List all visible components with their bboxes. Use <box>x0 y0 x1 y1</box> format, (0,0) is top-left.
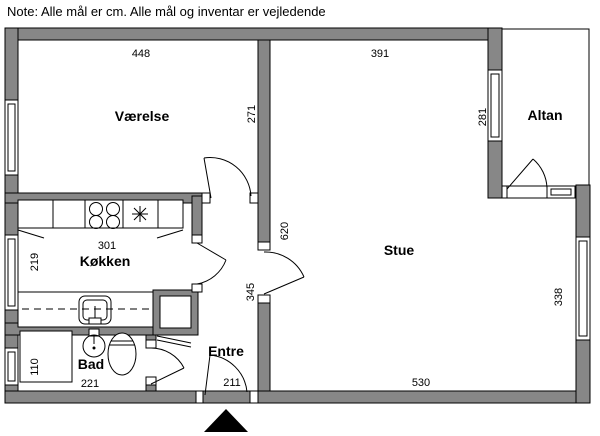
dim-bad-width: 221 <box>81 378 99 390</box>
dim-entre-door: 211 <box>223 377 241 389</box>
jamb-stue-bottom <box>258 295 270 303</box>
room-label-vaerelse: Værelse <box>115 108 170 124</box>
window-vaerelse <box>5 100 18 175</box>
wall-stue-left-lower <box>258 295 270 391</box>
room-label-altan: Altan <box>528 107 563 123</box>
window-bad <box>5 348 18 385</box>
door-stue <box>264 252 304 294</box>
wall-stue-left-upper <box>258 40 270 250</box>
dim-koekken-counter: 301 <box>98 240 116 252</box>
jamb-entre-left <box>196 391 203 403</box>
room-label-entre: Entre <box>208 343 244 359</box>
window-koekken <box>5 235 18 310</box>
dim-vaerelse-depth: 271 <box>246 105 258 123</box>
counter-leader-marks <box>18 230 183 238</box>
shower-tray <box>20 331 72 382</box>
closet-interior <box>160 296 191 328</box>
dim-koekken-window: 219 <box>29 253 41 271</box>
sink-drain-icon <box>132 206 148 222</box>
dim-stue-window: 338 <box>553 288 565 306</box>
door-entre <box>205 355 247 395</box>
jamb-koekken-top <box>192 235 202 243</box>
room-label-koekken: Køkken <box>80 253 131 269</box>
dim-stue-bottom: 530 <box>412 377 430 389</box>
jamb-altan-left <box>502 186 507 198</box>
door-koekken <box>197 243 226 284</box>
floorplan-drawing: 448 Værelse 271 391 281 Altan Stue 620 3… <box>0 0 600 436</box>
jamb-koekken-bottom <box>192 284 202 292</box>
toilet-icon <box>108 333 136 375</box>
window-stue-right <box>576 237 590 340</box>
jamb-bad-top <box>146 340 156 348</box>
opening-marks <box>157 336 191 347</box>
room-label-bad: Bad <box>78 356 104 372</box>
outer-wall-bottom <box>5 391 590 403</box>
door-altan <box>507 159 547 189</box>
jamb-stue-top <box>258 242 270 250</box>
door-vaerelse <box>204 158 251 198</box>
jamb-entre-right <box>250 391 258 403</box>
outer-wall-top <box>5 28 502 40</box>
room-label-stue: Stue <box>384 242 415 258</box>
wall-bad-right-lower <box>146 385 156 391</box>
dim-bad-window: 110 <box>29 358 41 376</box>
floorplan-page: Note: Alle mål er cm. Alle mål og invent… <box>0 0 600 436</box>
dim-entre-wall: 345 <box>245 283 257 301</box>
dim-altan-window: 281 <box>477 108 489 126</box>
dim-vaerelse-width: 448 <box>132 48 150 60</box>
altan-door-opening <box>502 186 547 198</box>
dim-stue-left: 620 <box>279 222 291 240</box>
dim-stue-top: 391 <box>371 48 389 60</box>
entrance-arrow-icon <box>204 409 248 432</box>
outer-wall-left <box>5 28 18 403</box>
window-stue-altan <box>488 70 502 141</box>
jamb-vaerelse-left <box>202 193 210 203</box>
